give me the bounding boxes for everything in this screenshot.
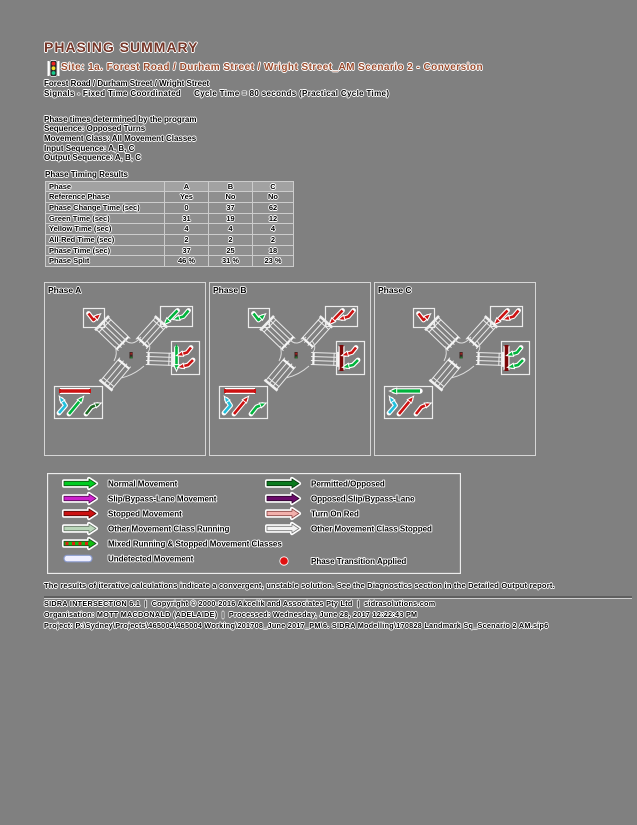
svg-text:Opposed Slip/Bypass-Lane: Opposed Slip/Bypass-Lane bbox=[311, 495, 415, 504]
svg-text:Phase Transition Applied: Phase Transition Applied bbox=[311, 557, 406, 566]
svg-text:Phase C: Phase C bbox=[378, 285, 412, 295]
svg-text:Phase B: Phase B bbox=[213, 285, 247, 295]
svg-text:Permitted/Opposed: Permitted/Opposed bbox=[311, 480, 385, 489]
svg-text:Other Movement Class Running: Other Movement Class Running bbox=[108, 525, 229, 534]
svg-text:Normal Movement: Normal Movement bbox=[108, 480, 178, 489]
svg-text:Stopped Movement: Stopped Movement bbox=[108, 510, 182, 519]
svg-text:Mixed Running & Stopped Moveme: Mixed Running & Stopped Movement Classes bbox=[108, 540, 282, 549]
svg-text:Phase A: Phase A bbox=[48, 285, 81, 295]
svg-text:Other Movement Class Stopped: Other Movement Class Stopped bbox=[311, 525, 432, 534]
svg-text:Undetected Movement: Undetected Movement bbox=[108, 555, 194, 564]
svg-text:Turn On Red: Turn On Red bbox=[311, 510, 359, 519]
svg-text:Slip/Bypass-Lane Movement: Slip/Bypass-Lane Movement bbox=[108, 495, 217, 504]
